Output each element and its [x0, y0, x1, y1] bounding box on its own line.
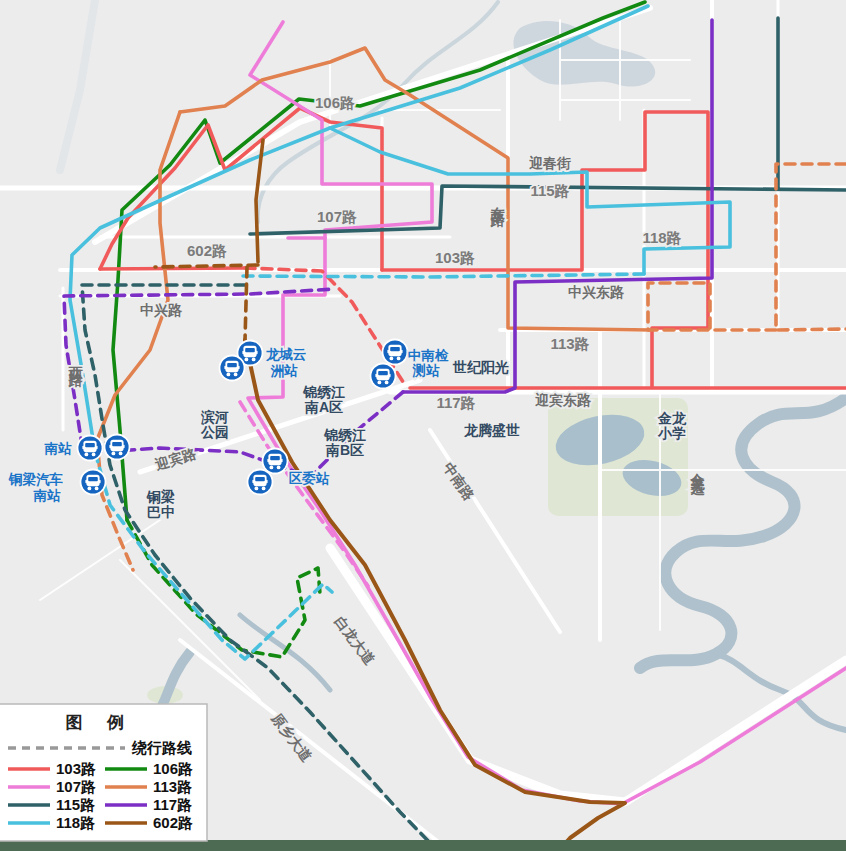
area-label-jinlong1: 金龙	[657, 410, 687, 426]
bus-station-icon[interactable]	[219, 355, 246, 382]
station-label-longcheng2: 洲站	[271, 363, 299, 378]
area-label-jinxiu-b2: 南B区	[325, 442, 364, 458]
route-label-103: 103路	[435, 249, 475, 266]
legend-label-602: 602路	[153, 814, 193, 831]
bus-station-icon[interactable]	[104, 434, 131, 461]
legend-title: 图 例	[66, 713, 135, 732]
area-label-longteng: 龙腾盛世	[463, 422, 520, 438]
route-label-107: 107路	[317, 208, 357, 225]
legend-label-118: 118路	[56, 814, 95, 831]
legend-panel: 图 例 绕行路线 103路 106路 107路 113路 115路 117路 1…	[0, 704, 207, 841]
route-label-106: 106路	[315, 94, 355, 111]
area-label-jinxiu-a1: 锦绣江	[302, 384, 345, 400]
station-label-qiche2: 南站	[33, 488, 62, 503]
area-label-jinxiu-b1: 锦绣江	[323, 427, 366, 443]
road-label-zhongxingdonglu: 中兴东路	[568, 284, 625, 300]
station-label-zhongnan1: 中南检	[408, 348, 449, 363]
station-label-longcheng1: 龙城云	[265, 347, 307, 362]
legend-label-106: 106路	[153, 760, 193, 777]
route-label-113: 113路	[550, 335, 589, 352]
legend-label-115: 115路	[56, 796, 95, 813]
bus-station-icon[interactable]	[77, 435, 104, 462]
road-label-yingchunjie: 迎春街	[529, 155, 571, 171]
bus-station-icon[interactable]	[80, 469, 107, 496]
area-label-tongliang: 铜梁	[146, 489, 175, 505]
station-label-zhongnan2: 测站	[412, 363, 441, 378]
bus-station-icon[interactable]	[370, 363, 397, 390]
station-label-quwei: 区委站	[289, 470, 330, 486]
area-label-bazhong: 巴中	[147, 504, 175, 520]
road-label-yingbindonglu: 迎宾东路	[535, 392, 592, 408]
route-label-118: 118路	[642, 229, 681, 246]
legend-label-107: 107路	[56, 778, 96, 795]
legend-detour-label: 绕行路线	[131, 739, 192, 756]
area-label-gongyuan: 公园	[200, 424, 229, 440]
area-label-jinxiu-a2: 南A区	[304, 399, 343, 415]
map-canvas[interactable]: 106路 107路 103路 115路 118路 113路 117路 602路 …	[0, 0, 846, 851]
legend-label-113: 113路	[153, 778, 192, 795]
road-label-zhongxinglu: 中兴路	[140, 302, 183, 318]
station-label-qiche1: 铜梁汽车	[8, 472, 64, 487]
route-label-117: 117路	[436, 394, 475, 411]
route-label-115: 115路	[530, 182, 569, 199]
bus-station-icon[interactable]	[247, 469, 274, 496]
route-label-602: 602路	[187, 242, 227, 259]
bus-route-map[interactable]: 106路 107路 103路 115路 118路 113路 117路 602路 …	[0, 0, 846, 851]
station-label-nanzhan: 南站	[44, 441, 73, 456]
bus-station-icon[interactable]	[382, 339, 409, 366]
area-label-xiaoxue: 小学	[657, 425, 686, 441]
area-label-shiji: 世纪阳光	[452, 359, 509, 375]
legend-label-117: 117路	[153, 796, 192, 813]
legend-label-103: 103路	[56, 760, 96, 777]
